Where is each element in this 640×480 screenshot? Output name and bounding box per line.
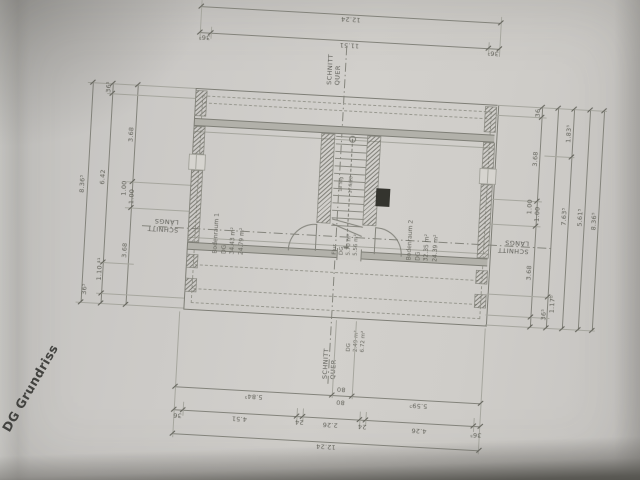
dim-left-chain-3: 3.68 [120, 242, 129, 258]
window-right [479, 168, 497, 185]
flur-label: Flur DG 5.70 m² 5.56 m² [332, 233, 361, 256]
room2-label: Bodenraum 2 DG 32.35 m² 24.39 m² [405, 220, 441, 262]
schnitt-quer-top: SCHNITTQUER [325, 54, 343, 86]
page-right-shade [614, 0, 640, 480]
dim-right-overall: 8.36⁵ [589, 212, 598, 231]
dim-right-chain-1: 3.68 [531, 151, 540, 167]
stair-note-a: 18 Stg [339, 177, 345, 192]
wall-right-upper [482, 142, 495, 169]
dim-right-chain-4: 3.68 [524, 265, 533, 281]
dim-bottom-opening-a: 80 [337, 385, 346, 393]
dim-right-chain-0: 36 [534, 109, 542, 118]
dim-right-chain-5: 36⁵ [539, 309, 548, 321]
dim-top-overall: 12.24 [341, 15, 361, 24]
schnitt-laengs-left: SCHNITTLÄNGS [147, 216, 179, 234]
dim-left-lower: 1.10 ¹¹ [95, 257, 104, 281]
room1-label: Bodenraum 1 DG 34.43 m² 24.79 m² [212, 213, 248, 255]
wall-right-stub-top [484, 106, 497, 133]
stair-note-b: 17.5/28 [349, 176, 355, 194]
dim-bottom-chain-6: 36⁵ [470, 431, 482, 440]
corner-shadow [0, 0, 220, 160]
floor-plan-photo: 12.24 36⁵ 11.51 36⁵ [0, 0, 640, 480]
area-note-area-reduced: 6.72 m² [360, 331, 368, 353]
dim-top-wall-right: 36⁵ [487, 49, 499, 58]
chimney [375, 188, 390, 207]
schnitt-laengs-right: SCHNITTLÄNGS [497, 238, 529, 256]
dim-left-overall: 8.36⁵ [78, 175, 87, 194]
dim-right-upper: 1.83⁵ [564, 125, 573, 144]
dim-bottom-chain-4: 24 [358, 423, 367, 431]
dim-bottom-opening-b: 80 [336, 398, 345, 406]
dim-bottom-chain-2: 24 [295, 418, 304, 426]
dim-top-inner: 11.51 [339, 41, 359, 50]
dim-bottom-left-segment: 5.84⁵ [244, 392, 263, 401]
schnitt-quer-bottom: SCHNITTQUER [321, 348, 339, 380]
dim-right-inner: 7.63⁵ [560, 207, 569, 226]
dim-bottom-chain-0: 36 [173, 411, 182, 419]
dim-right-chain-3: 1.00 [533, 206, 542, 222]
dim-left-inner: 6.42 [98, 169, 107, 185]
dim-left-wall-bottom: 36⁵ [80, 283, 89, 295]
area-note: DG 2.49 m² 6.72 m² [346, 330, 368, 353]
dim-bottom-chain-3: 2.26 [322, 421, 338, 430]
flur-area-reduced: 5.56 m² [353, 234, 361, 256]
dim-left-chain-2: 1.00 [127, 189, 136, 205]
dim-right-mid: 5.61⁵ [576, 208, 585, 227]
dim-bottom-chain-1: 4.51 [231, 414, 247, 423]
dim-bottom-chain-5: 4.26 [411, 427, 427, 436]
dim-bottom-right-segment: 5.59⁵ [409, 401, 428, 410]
dim-right-lower: 1.17⁵ [548, 295, 557, 314]
